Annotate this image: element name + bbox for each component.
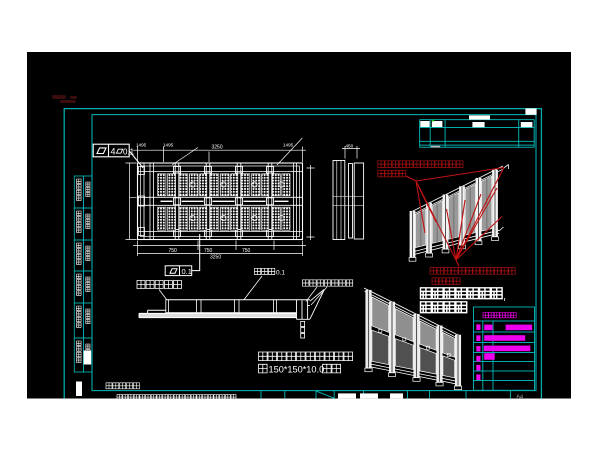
svg-text:64: 64 xyxy=(517,395,524,401)
svg-text:3250: 3250 xyxy=(210,255,221,261)
svg-text:750: 750 xyxy=(242,248,251,254)
svg-text:1495: 1495 xyxy=(283,143,294,148)
svg-text:1495: 1495 xyxy=(136,143,147,148)
svg-text:450: 450 xyxy=(346,143,354,148)
svg-text:150*150*10.0: 150*150*10.0 xyxy=(269,365,325,375)
svg-text:750: 750 xyxy=(204,248,213,254)
svg-text:3250: 3250 xyxy=(212,144,223,150)
svg-text:4: 4 xyxy=(111,147,116,157)
svg-text:,: , xyxy=(503,291,506,303)
svg-text:1495: 1495 xyxy=(163,143,174,148)
svg-text:750: 750 xyxy=(169,248,178,254)
svg-text:0.1: 0.1 xyxy=(123,148,135,157)
svg-text:0.1: 0.1 xyxy=(276,270,285,277)
svg-text:0.1: 0.1 xyxy=(182,267,192,276)
